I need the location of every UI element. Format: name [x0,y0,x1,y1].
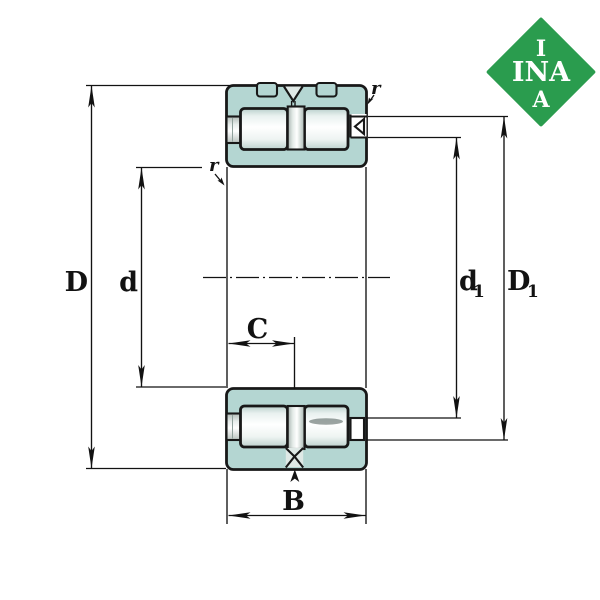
roller-bottom-left [241,406,288,447]
cage-slot-right [317,83,337,97]
bearing-drawing-page: I INA A [0,0,600,600]
bearing-technical-drawing: I INA A [0,0,600,600]
dimension-label-B: B [282,486,305,517]
dimension-r-left: r [209,155,225,186]
center-rib-top [288,107,305,150]
dimension-r-right: r [368,78,383,105]
dimension-C: C [229,314,295,389]
dimension-label-D1-sub: 1 [527,282,539,302]
center-rib-bottom [288,406,305,449]
roller-bottom-right [305,406,349,447]
left-face-element-top [227,117,242,144]
dimension-label-r-left: r [209,155,220,176]
dimension-label-d: d [119,267,138,298]
bearing-top-section [227,83,368,167]
ina-logo-letter-bottom: A [531,87,550,113]
ina-logo-letters-middle: INA [512,57,571,88]
dimension-D1: D 1 [366,117,539,441]
left-face-element-bottom [227,414,242,441]
dimension-label-D: D [65,267,88,298]
roller-top-left [241,109,288,150]
bearing-bottom-section [227,389,367,483]
roller-top-right [305,109,349,150]
ina-logo: I INA A [486,17,596,127]
cage-slot-left [257,83,277,97]
dimension-label-C: C [247,314,269,345]
retaining-ring-groove-top [351,114,368,138]
dimension-B: B [229,486,366,519]
lubrication-hole-pointer-arrow [290,470,299,483]
roller-shading-streak [309,418,343,424]
lubrication-groove-bottom [286,448,303,468]
retaining-ring-groove-bottom [351,418,365,440]
dimension-label-d1-sub: 1 [473,282,485,302]
